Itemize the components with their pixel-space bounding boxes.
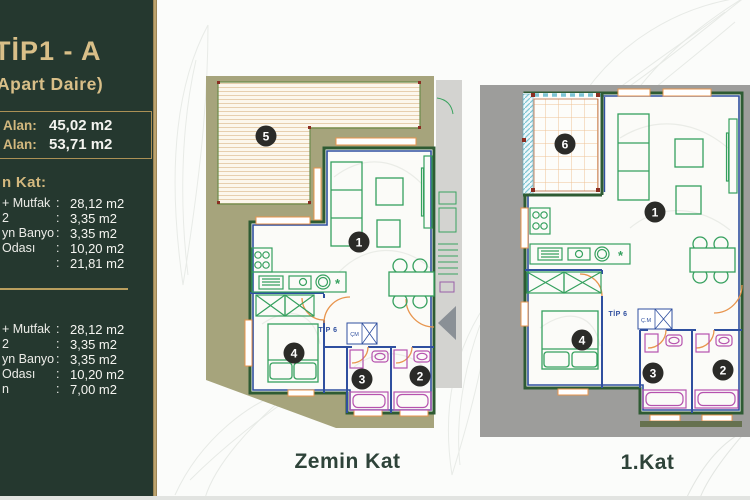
sidebar-gold-edge [153, 0, 157, 500]
unit-type-label: TİP 6 [608, 310, 627, 318]
room-marker-bath1: 3 [352, 369, 373, 390]
area-value: 45,02 m2 [49, 116, 112, 135]
spec-table-first-floor: + Mutfak:28,12 m2 2:3,35 m2 yn Banyo:3,3… [2, 322, 134, 397]
svg-text:4: 4 [291, 347, 298, 361]
svg-text:2: 2 [720, 364, 727, 378]
room-marker-terrace: 5 [256, 126, 277, 147]
svg-text:1: 1 [652, 206, 659, 220]
floor-label-zemin-kat: Zemin Kat [265, 450, 430, 474]
spec-row: 2:3,35 m2 [2, 211, 134, 226]
spec-row: yn Banyo:3,35 m2 [2, 226, 134, 241]
area-row: Alan: 45,02 m2 [3, 116, 151, 135]
room-marker-bath1: 3 [643, 363, 664, 384]
svg-text:3: 3 [650, 367, 657, 381]
room-marker-balcony: 6 [555, 134, 576, 155]
area-summary-box: Alan: 45,02 m2 Alan: 53,71 m2 [0, 111, 152, 159]
unit-type-label: TİP 6 [318, 326, 337, 334]
spec-row: + Mutfak:28,12 m2 [2, 196, 134, 211]
spec-row: yn Banyo:3,35 m2 [2, 352, 134, 367]
neighbor-unit [436, 80, 462, 388]
svg-text:2: 2 [417, 370, 424, 384]
area-value: 53,71 m2 [49, 135, 112, 154]
area-label: Alan: [3, 116, 49, 135]
spec-row: 2:3,35 m2 [2, 337, 134, 352]
closet: ÇM [347, 323, 377, 344]
svg-text:3: 3 [359, 373, 366, 387]
floorplan-1kat: * Ç.M TİP 6 [480, 78, 750, 440]
room-marker-bath2: 2 [713, 360, 734, 381]
room-marker-bedroom: 4 [572, 330, 593, 351]
svg-text:4: 4 [579, 334, 586, 348]
spec-table-ground-floor: + Mutfak:28,12 m2 2:3,35 m2 yn Banyo:3,3… [2, 196, 134, 271]
gold-divider [0, 288, 128, 290]
spec-row: Odası:10,20 m2 [2, 367, 134, 382]
type-title: TİP1 - A [0, 36, 102, 67]
closet-label: ÇM [350, 332, 359, 338]
spec-row: Odası:10,20 m2 [2, 241, 134, 256]
page-bottom-edge [0, 496, 750, 500]
closet-label: Ç.M [641, 318, 652, 324]
section-heading: n Kat: [2, 174, 46, 191]
closet: Ç.M [638, 309, 672, 329]
room-marker-bedroom: 4 [284, 343, 305, 364]
room-marker-living: 1 [349, 232, 370, 253]
type-subtitle: Apart Daire) [0, 74, 103, 95]
area-row: Alan: 53,71 m2 [3, 135, 151, 154]
room-marker-bath2: 2 [410, 366, 431, 387]
ground-band [640, 421, 742, 427]
spec-sidebar: TİP1 - A Apart Daire) Alan: 45,02 m2 Ala… [0, 0, 153, 500]
floorplan-zemin-kat: * ÇM TİP 6 [204, 72, 464, 462]
area-label: Alan: [3, 135, 49, 154]
spec-row: + Mutfak:28,12 m2 [2, 322, 134, 337]
svg-text:6: 6 [562, 138, 569, 152]
room-marker-living: 1 [645, 202, 666, 223]
floor-label-1kat: 1.Kat [575, 451, 720, 475]
svg-text:1: 1 [356, 236, 363, 250]
spec-row: :21,81 m2 [2, 256, 134, 271]
svg-text:5: 5 [263, 130, 270, 144]
spec-row: n:7,00 m2 [2, 382, 134, 397]
